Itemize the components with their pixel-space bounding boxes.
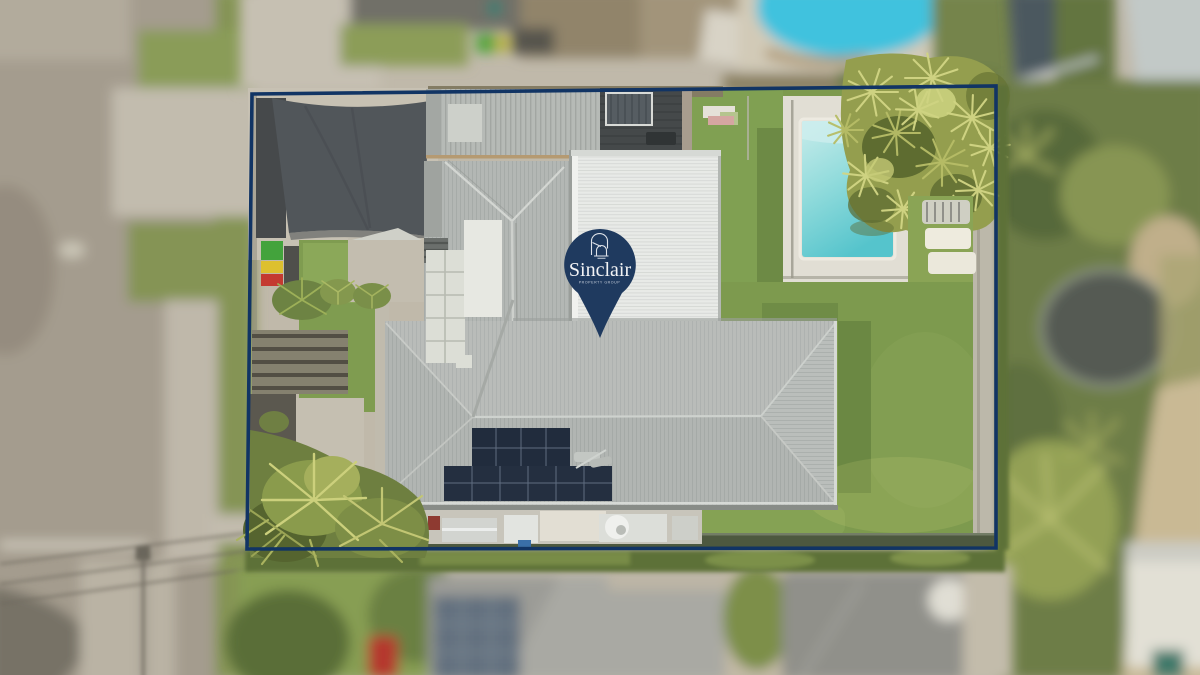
svg-text:Sinclair: Sinclair xyxy=(569,259,632,281)
svg-text:PROPERTY GROUP: PROPERTY GROUP xyxy=(579,281,621,285)
